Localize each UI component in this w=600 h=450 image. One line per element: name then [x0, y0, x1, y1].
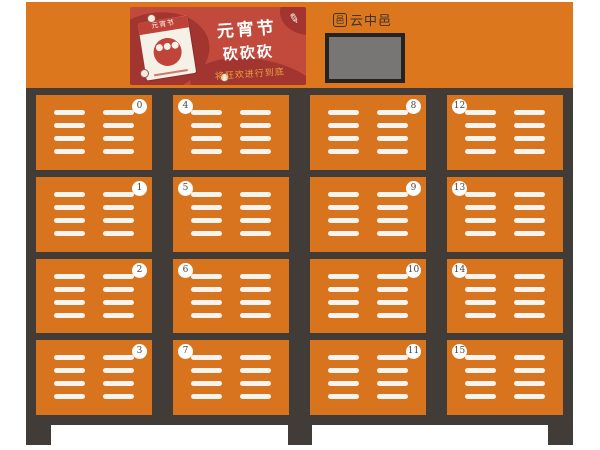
vent-group: [240, 274, 271, 318]
door-number-badge: 4: [178, 99, 193, 114]
door-vents: [36, 274, 152, 318]
cabinet-leg-middle: [288, 425, 312, 445]
vent-group: [328, 110, 359, 154]
locker-door[interactable]: 8: [310, 95, 426, 170]
vent-group: [377, 355, 408, 399]
vent-group: [514, 355, 545, 399]
door-number-badge: 9: [406, 181, 421, 196]
door-number-badge: 1: [132, 181, 147, 196]
door-vents: [310, 274, 426, 318]
door-number-badge: 13: [452, 181, 467, 196]
vent-group: [240, 192, 271, 236]
door-number-badge: 14: [452, 263, 467, 278]
door-vents: [310, 355, 426, 399]
locker-door[interactable]: 1: [36, 177, 152, 252]
door-number-badge: 10: [406, 263, 421, 278]
vent-group: [103, 192, 134, 236]
pin-dot-icon: [147, 14, 156, 23]
vent-group: [191, 110, 222, 154]
locker-door[interactable]: 2: [36, 259, 152, 334]
cabinet-leg-right: [548, 425, 573, 445]
vent-group: [328, 274, 359, 318]
locker-door[interactable]: 10: [310, 259, 426, 334]
vent-group: [514, 192, 545, 236]
locker-kiosk: 元宵节 元宵节 砍砍砍 将狂欢进行到底 ✎ 邑 云中邑: [0, 0, 600, 450]
tangyuan-bowl-icon: [152, 36, 184, 68]
door-vents: [310, 192, 426, 236]
brand-logo: 邑 云中邑: [333, 10, 392, 29]
locker-door[interactable]: 3: [36, 340, 152, 415]
vent-group: [328, 192, 359, 236]
vent-group: [103, 274, 134, 318]
tangyuan-ball: [163, 43, 171, 51]
vent-group: [191, 274, 222, 318]
promo-banner: 元宵节 元宵节 砍砍砍 将狂欢进行到底 ✎: [130, 7, 306, 85]
door-vents: [447, 274, 563, 318]
vent-group: [465, 355, 496, 399]
locker-door[interactable]: 12: [447, 95, 563, 170]
vent-group: [377, 274, 408, 318]
door-vents: [36, 110, 152, 154]
vent-group: [54, 355, 85, 399]
brand-icon: 邑: [333, 13, 347, 27]
brand-name: 云中邑: [350, 10, 392, 29]
vent-group: [191, 192, 222, 236]
locker-door[interactable]: 0: [36, 95, 152, 170]
door-number-badge: 8: [406, 99, 421, 114]
vent-group: [54, 274, 85, 318]
vent-group: [54, 192, 85, 236]
vent-group: [465, 274, 496, 318]
vent-group: [377, 110, 408, 154]
locker-door[interactable]: 13: [447, 177, 563, 252]
cabinet-leg-left: [26, 425, 51, 445]
pin-dot-icon: [140, 69, 149, 78]
vent-group: [514, 274, 545, 318]
locker-door[interactable]: 14: [447, 259, 563, 334]
vent-group: [514, 110, 545, 154]
vent-group: [240, 355, 271, 399]
door-vents: [310, 110, 426, 154]
locker-grid: 0 1 2: [36, 95, 563, 415]
locker-door[interactable]: 7: [173, 340, 289, 415]
vent-group: [377, 192, 408, 236]
door-vents: [36, 192, 152, 236]
door-vents: [173, 355, 289, 399]
tangyuan-ball: [155, 44, 163, 52]
door-vents: [447, 192, 563, 236]
locker-cabinet: 0 1 2: [26, 88, 573, 425]
vent-group: [103, 355, 134, 399]
vent-group: [54, 110, 85, 154]
vent-group: [240, 110, 271, 154]
door-vents: [173, 110, 289, 154]
locker-door[interactable]: 5: [173, 177, 289, 252]
vent-group: [191, 355, 222, 399]
vent-group: [103, 110, 134, 154]
header-panel: 元宵节 元宵节 砍砍砍 将狂欢进行到底 ✎ 邑 云中邑: [26, 2, 573, 88]
door-vents: [447, 355, 563, 399]
locker-door[interactable]: 9: [310, 177, 426, 252]
tangyuan-ball: [171, 41, 179, 49]
locker-door[interactable]: 6: [173, 259, 289, 334]
banner-title-2: 砍砍砍: [198, 39, 299, 67]
door-number-badge: 12: [452, 99, 467, 114]
door-vents: [36, 355, 152, 399]
door-number-badge: 5: [178, 181, 193, 196]
vent-group: [328, 355, 359, 399]
locker-door[interactable]: 4: [173, 95, 289, 170]
door-number-badge: 6: [178, 263, 193, 278]
kiosk-screen[interactable]: [325, 33, 405, 83]
door-vents: [447, 110, 563, 154]
locker-door[interactable]: 15: [447, 340, 563, 415]
door-vents: [173, 274, 289, 318]
vent-group: [465, 192, 496, 236]
door-vents: [173, 192, 289, 236]
locker-door[interactable]: 11: [310, 340, 426, 415]
door-number-badge: 2: [132, 263, 147, 278]
door-number-badge: 0: [132, 99, 147, 114]
vent-group: [465, 110, 496, 154]
